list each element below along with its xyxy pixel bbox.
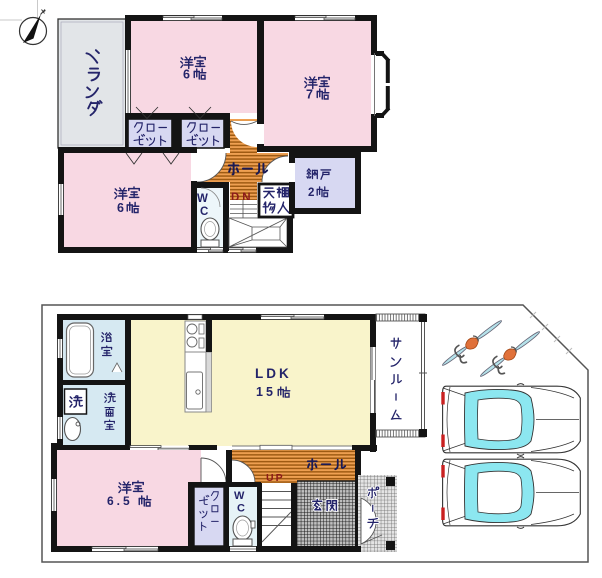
svg-text:15: 15: [256, 385, 276, 399]
svg-text:W: W: [197, 193, 208, 205]
svg-text:C: C: [237, 503, 245, 515]
svg-text:7: 7: [306, 88, 313, 102]
svg-text:6: 6: [117, 201, 124, 215]
svg-text:C: C: [200, 206, 208, 218]
svg-text:6: 6: [183, 68, 190, 82]
svg-text:UP: UP: [266, 472, 285, 484]
svg-text:6.5: 6.5: [107, 494, 133, 508]
svg-text:LDK: LDK: [255, 366, 292, 381]
svg-text:2: 2: [308, 187, 314, 199]
svg-text:W: W: [234, 490, 245, 502]
